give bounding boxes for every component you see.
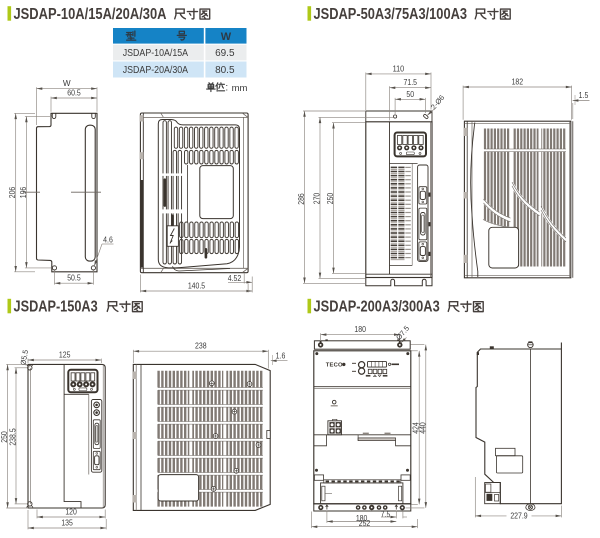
svg-text:JSDAP-150A3: JSDAP-150A3 [14,298,98,315]
svg-text:120: 120 [65,508,77,517]
svg-text:286: 286 [297,193,306,205]
svg-text:196: 196 [19,186,28,198]
svg-text:W: W [221,31,232,43]
svg-text:71.5: 71.5 [404,78,418,87]
svg-text:69.5: 69.5 [215,48,235,59]
svg-text:60.5: 60.5 [67,88,81,97]
svg-text:227.9: 227.9 [510,511,528,520]
svg-text:50: 50 [406,90,414,99]
svg-text:110: 110 [393,64,405,73]
svg-text:JSDAP-10A/15A: JSDAP-10A/15A [123,48,189,59]
svg-text:JSDAP-20A/30A: JSDAP-20A/30A [123,65,189,76]
svg-text:270: 270 [313,192,322,204]
svg-text:238: 238 [195,342,207,351]
svg-text:TECO: TECO [326,362,343,368]
svg-text:250: 250 [326,192,335,204]
svg-text:W: W [63,79,71,88]
svg-text:206: 206 [8,186,17,198]
svg-text:135: 135 [61,519,73,528]
svg-text:50.5: 50.5 [67,274,81,283]
svg-text:4.6: 4.6 [103,236,113,245]
svg-text:252: 252 [359,519,371,528]
svg-text:182: 182 [512,77,524,86]
svg-text:440: 440 [418,422,427,434]
svg-text:JSDAP-10A/15A/20A/30A: JSDAP-10A/15A/20A/30A [14,6,167,23]
svg-text:4.52: 4.52 [228,274,242,283]
svg-text:1.5: 1.5 [579,91,589,100]
svg-text:238.5: 238.5 [9,428,18,446]
svg-text:1.6: 1.6 [276,351,286,360]
svg-text:7.5: 7.5 [381,510,391,519]
svg-text:mm: mm [232,83,248,94]
svg-text:125: 125 [59,350,71,359]
svg-text:JSDAP-200A3/300A3: JSDAP-200A3/300A3 [314,298,440,315]
svg-text:80.5: 80.5 [215,65,235,76]
svg-text:140.5: 140.5 [188,281,206,290]
svg-text:JSDAP-50A3/75A3/100A3: JSDAP-50A3/75A3/100A3 [314,6,468,23]
svg-text:180: 180 [354,325,366,334]
svg-text::: : [225,83,228,94]
